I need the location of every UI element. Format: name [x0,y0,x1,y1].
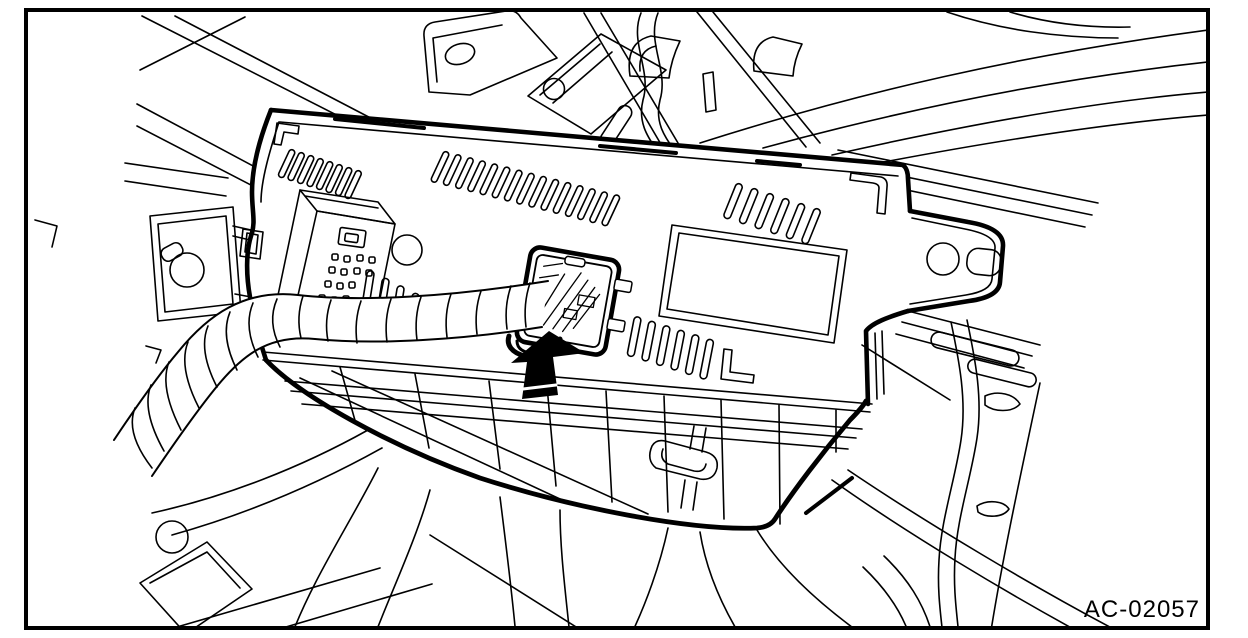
left-side-bracket [35,163,251,321]
service-manual-illustration: AC-02057 [0,0,1248,638]
figure-code-label: AC-02057 [1084,596,1200,623]
figure-page: AC-02057 [0,0,1248,638]
